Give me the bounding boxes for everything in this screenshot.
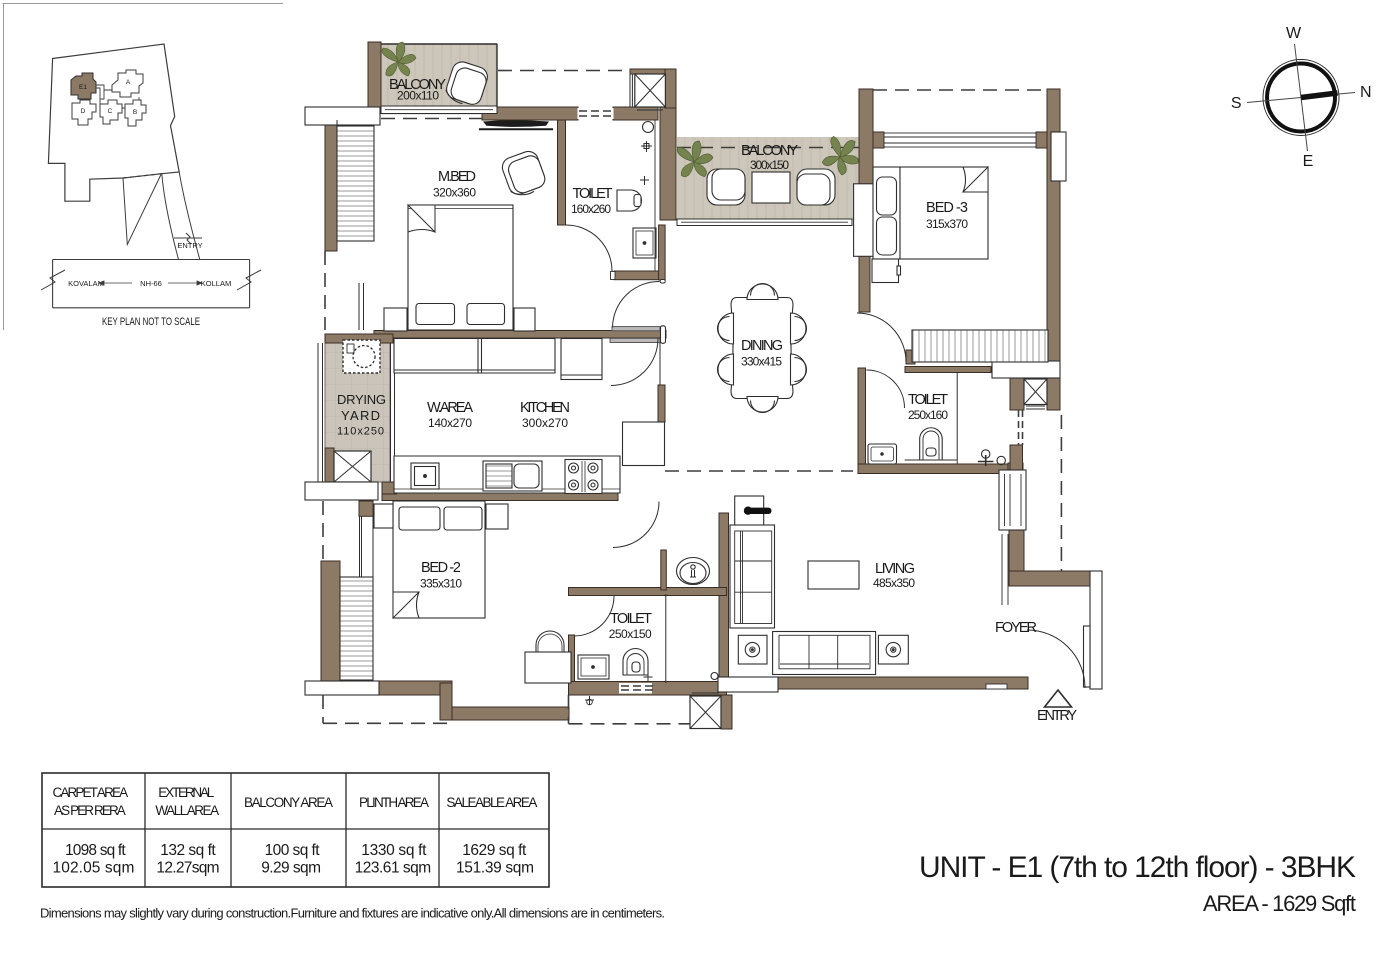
svg-text:335x310: 335x310 bbox=[420, 577, 462, 591]
svg-text:160x260: 160x260 bbox=[571, 202, 611, 216]
svg-text:1098 sq ft: 1098 sq ft bbox=[65, 842, 126, 859]
svg-text:BED -3: BED -3 bbox=[926, 200, 968, 216]
svg-text:TOILET: TOILET bbox=[610, 611, 652, 627]
svg-text:320x360: 320x360 bbox=[433, 186, 476, 200]
svg-text:Dimensions may slightly vary d: Dimensions may slightly vary during cons… bbox=[40, 906, 665, 921]
svg-text:250x150: 250x150 bbox=[609, 627, 652, 641]
svg-text:PLINTH AREA: PLINTH AREA bbox=[359, 795, 429, 810]
svg-text:BED -2: BED -2 bbox=[421, 560, 461, 576]
svg-text:123.61 sqm: 123.61 sqm bbox=[355, 860, 432, 877]
svg-text:ENTRY: ENTRY bbox=[177, 241, 202, 250]
svg-text:KOVALAM: KOVALAM bbox=[68, 279, 104, 288]
svg-text:250x160: 250x160 bbox=[908, 408, 948, 422]
svg-text:B: B bbox=[133, 109, 137, 116]
svg-text:151.39 sqm: 151.39 sqm bbox=[456, 860, 534, 877]
svg-text:1330 sq ft: 1330 sq ft bbox=[361, 842, 427, 859]
svg-text:EXTERNAL: EXTERNAL bbox=[158, 785, 214, 800]
svg-text:AREA - 1629 Sqft: AREA - 1629 Sqft bbox=[1203, 891, 1356, 916]
svg-text:CARPET AREA: CARPET AREA bbox=[53, 785, 129, 800]
svg-text:M.BED: M.BED bbox=[438, 169, 476, 185]
svg-text:DRYING: DRYING bbox=[337, 392, 386, 407]
svg-text:100 sq ft: 100 sq ft bbox=[265, 842, 321, 859]
svg-text:485x350: 485x350 bbox=[873, 576, 915, 590]
svg-text:NH-66: NH-66 bbox=[140, 279, 162, 288]
svg-text:S: S bbox=[1231, 95, 1242, 112]
svg-text:LIVING: LIVING bbox=[875, 561, 915, 577]
svg-text:YARD: YARD bbox=[341, 408, 380, 423]
svg-text:E: E bbox=[1303, 153, 1314, 170]
svg-text:DINING: DINING bbox=[741, 338, 783, 354]
svg-text:TOILET: TOILET bbox=[908, 392, 948, 408]
svg-text:9.29 sqm: 9.29 sqm bbox=[261, 860, 321, 877]
svg-text:140x270: 140x270 bbox=[428, 416, 472, 430]
svg-text:110x250: 110x250 bbox=[337, 426, 384, 438]
svg-text:W.AREA: W.AREA bbox=[427, 400, 473, 416]
svg-text:ENTRY: ENTRY bbox=[1037, 708, 1077, 724]
svg-text:E1: E1 bbox=[79, 84, 87, 91]
svg-text:C: C bbox=[108, 108, 113, 115]
svg-text:WALL AREA: WALL AREA bbox=[155, 803, 219, 818]
svg-text:KITCHEN: KITCHEN bbox=[520, 400, 570, 416]
svg-text:N: N bbox=[1360, 84, 1372, 101]
svg-text:W: W bbox=[1286, 25, 1302, 42]
svg-text:FOYER: FOYER bbox=[995, 620, 1037, 636]
svg-text:132 sq ft: 132 sq ft bbox=[160, 842, 216, 859]
svg-text:D: D bbox=[81, 108, 86, 115]
svg-text:BALCONY AREA: BALCONY AREA bbox=[244, 795, 333, 810]
svg-text:KEY PLAN NOT TO SCALE: KEY PLAN NOT TO SCALE bbox=[102, 316, 200, 328]
svg-text:KOLLAM: KOLLAM bbox=[201, 279, 231, 288]
svg-text:A: A bbox=[126, 79, 131, 86]
svg-text:AS PER RERA: AS PER RERA bbox=[54, 803, 126, 818]
svg-text:12.27sqm: 12.27sqm bbox=[156, 860, 219, 877]
svg-text:TOILET: TOILET bbox=[573, 186, 613, 202]
svg-text:1629 sq ft: 1629 sq ft bbox=[462, 842, 527, 859]
svg-text:BALCONY: BALCONY bbox=[741, 143, 798, 159]
svg-text:315x370: 315x370 bbox=[926, 217, 968, 231]
svg-text:330x415: 330x415 bbox=[741, 355, 782, 369]
svg-text:300x150: 300x150 bbox=[750, 158, 789, 172]
svg-text:SALEABLE AREA: SALEABLE AREA bbox=[446, 795, 537, 810]
svg-text:200x110: 200x110 bbox=[397, 89, 439, 103]
svg-text:UNIT - E1 (7th to 12th floor): UNIT - E1 (7th to 12th floor) - 3BHK bbox=[919, 851, 1356, 884]
svg-text:102.05 sqm: 102.05 sqm bbox=[53, 860, 135, 877]
svg-text:300x270: 300x270 bbox=[522, 416, 568, 430]
